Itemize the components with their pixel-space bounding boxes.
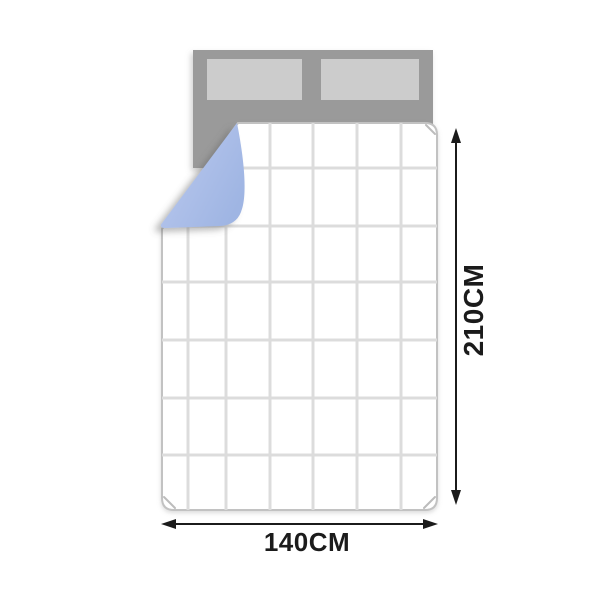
pillow-right [321,59,419,100]
arrowhead-down [451,490,461,505]
arrowhead-up [451,128,461,143]
width-dimension-label: 140CM [197,527,417,557]
height-dimension-label: 210CM [459,245,489,375]
arrowhead-left [161,519,176,529]
bed-quilt-illustration [0,0,600,600]
arrowhead-right [423,519,438,529]
quilt-size-diagram: 210CM 140CM [0,0,600,600]
pillow-left [207,59,302,100]
